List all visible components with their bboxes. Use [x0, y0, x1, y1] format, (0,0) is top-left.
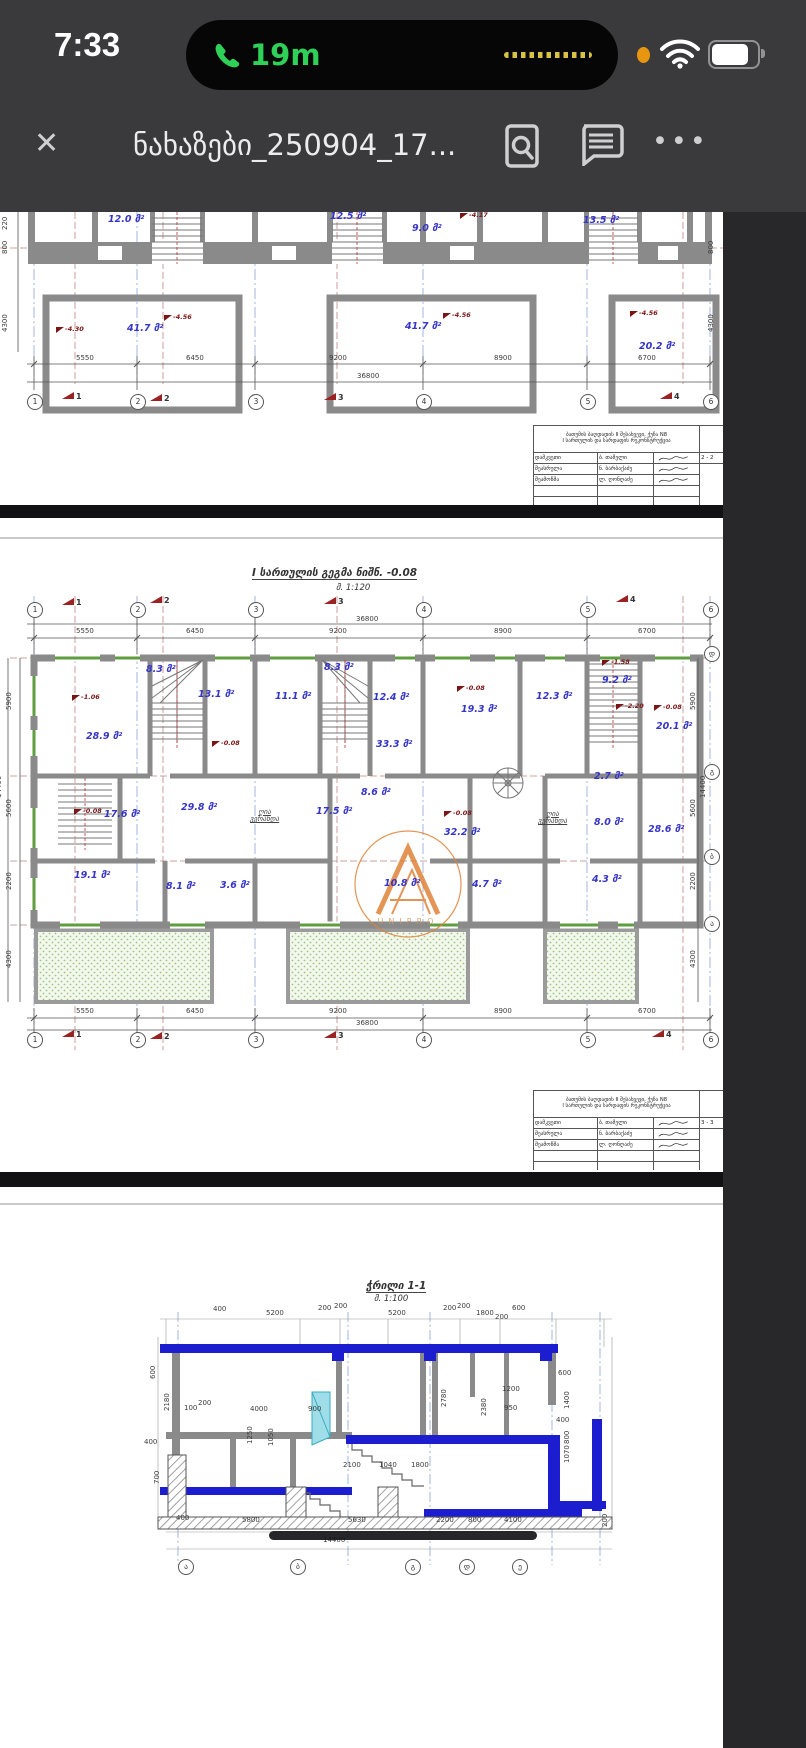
title-block: ბათუმის ბაღდადის II შესახვევი, ქუჩა N8I … — [533, 1090, 723, 1170]
section-labels: ჭრილი 1-1მ. 1:10040052002002005200200200… — [0, 1187, 723, 1748]
axis-bubble: 3 — [248, 602, 264, 618]
plan-label: 220 — [2, 217, 9, 230]
plan-label: 600 — [512, 1305, 525, 1312]
plan-label: 1 — [62, 598, 82, 607]
plan-label: -4.56 — [630, 310, 658, 317]
plan-label: 5600 — [6, 799, 13, 817]
plan-label: მ. 1:100 — [374, 1295, 408, 1304]
person: ბ. თამელი — [598, 453, 654, 464]
axis-bubble: 2 — [130, 394, 146, 410]
plan-label: 5800 — [242, 1517, 260, 1524]
plan-label: 600 — [150, 1366, 157, 1379]
plan-label: 4300 — [708, 314, 715, 332]
plan-label: -0.08 — [444, 810, 472, 817]
plan-label: 6450 — [186, 1008, 204, 1015]
person: ლ. ღონღაძე — [598, 1140, 654, 1151]
plan-label: -0.08 — [654, 704, 682, 711]
role: შეასრულა — [534, 464, 598, 475]
plan-label: I სართულის გეგმა ნიშნ. -0.08 — [252, 568, 417, 580]
role: შეამოწმა — [534, 1140, 598, 1151]
plan-label: -4.30 — [56, 326, 84, 333]
plan-label: 800 — [564, 1431, 571, 1444]
title-block-table: ბათუმის ბაღდადის II შესახვევი, ქუჩა N8I … — [533, 1090, 723, 1170]
axis-bubble: 1 — [27, 394, 43, 410]
plan-label: 2100 — [343, 1462, 361, 1469]
plan-label: 17.5 მ² — [316, 807, 352, 817]
plan-label: 10.8 მ² — [384, 879, 420, 889]
axis-bubble: 5 — [580, 602, 596, 618]
plan-label: 12.0 მ² — [108, 215, 144, 225]
plan-label: 8.3 მ² — [324, 663, 354, 673]
title-block-table: ბათუმის ბაღდადის II შესახვევი, ქუჩა N8I … — [533, 425, 723, 505]
plan-label: 1 — [62, 392, 82, 401]
plan-label: -4.17 — [460, 212, 488, 219]
plan-label: 8.1 მ² — [166, 882, 196, 892]
plan-label: 6700 — [638, 628, 656, 635]
plan-label: 2780 — [441, 1389, 448, 1407]
axis-bubble: 6 — [703, 1032, 719, 1048]
signature — [654, 1140, 700, 1151]
plan-label: 12.5 მ² — [330, 212, 366, 222]
plan-label: -0.08 — [212, 740, 240, 747]
axis-bubble: ა — [704, 916, 720, 932]
plan-label: 4300 — [690, 950, 697, 968]
plan-label: 800 — [468, 1517, 481, 1524]
first-floor-plan-labels: I სართულის გეგმა ნიშნ. -0.08მ. 1:1201234… — [0, 518, 723, 1172]
plan-label: 36800 — [356, 616, 378, 623]
plan-label: 4.7 მ² — [472, 880, 502, 890]
sheet-ref: 3 - 3 — [700, 1118, 724, 1129]
axis-bubble: გ — [704, 764, 720, 780]
plan-label: 13.5 მ² — [583, 216, 619, 226]
plan-label: 1800 — [476, 1310, 494, 1317]
sheet-title: სარდაფის გეგმა ნიშნ. -3.50 — [700, 426, 724, 453]
plan-label: 8900 — [494, 1008, 512, 1015]
mic-in-use-indicator — [637, 47, 650, 63]
plan-label: 20.2 მ² — [639, 342, 675, 352]
role: შეასრულა — [534, 1129, 598, 1140]
plan-label: 28.9 მ² — [86, 732, 122, 742]
plan-label: 200 — [457, 1303, 470, 1310]
plan-label: 1070 — [564, 1445, 571, 1463]
plan-label: 9200 — [329, 628, 347, 635]
plan-label: 200 — [602, 1514, 609, 1527]
plan-label: 33.3 მ² — [376, 740, 412, 750]
plan-label: 200 — [443, 1305, 456, 1312]
plan-label: 4000 — [250, 1406, 268, 1413]
plan-label: 8.3 მ² — [146, 665, 176, 675]
company: შ.პ.ს. «უნიპრო» — [700, 464, 724, 506]
plan-label: 400 — [213, 1306, 226, 1313]
plan-label: 2 — [150, 394, 170, 403]
signature — [654, 475, 700, 486]
axis-bubble: დ — [704, 646, 720, 662]
axis-bubble: დ — [459, 1559, 475, 1575]
plan-label: 6700 — [638, 355, 656, 362]
plan-label: ღია ვერანდა — [538, 811, 567, 826]
person: ნ. ბარბაქაძე — [598, 1129, 654, 1140]
plan-label: 12.4 მ² — [373, 693, 409, 703]
clock: 7:33 — [54, 26, 120, 64]
signature — [654, 464, 700, 475]
plan-label: 950 — [504, 1405, 517, 1412]
axis-bubble: 1 — [27, 1032, 43, 1048]
plan-label: 3 — [324, 393, 344, 402]
dynamic-island-call-pill[interactable]: 19m — [186, 20, 618, 90]
plan-label: 400 — [144, 1439, 157, 1446]
plan-label: 2180 — [164, 1393, 171, 1411]
axis-bubble: 6 — [703, 394, 719, 410]
comments-icon[interactable] — [578, 122, 624, 166]
plan-label: 3 — [324, 1031, 344, 1040]
plan-label: 9.0 მ² — [412, 224, 442, 234]
plan-label: 36800 — [357, 373, 379, 380]
plan-label: 1250 — [247, 1426, 254, 1444]
pdf-page-basement-plan[interactable]: 12.0 მ²12.5 მ²9.0 მ²13.5 მ²41.7 მ²41.7 მ… — [0, 212, 723, 505]
plan-label: 1400 — [564, 1391, 571, 1409]
plan-label: 41.7 მ² — [127, 324, 163, 334]
company: შ.პ.ს. «უნიპრო» — [700, 1129, 724, 1171]
axis-bubble: ე — [512, 1559, 528, 1575]
plan-label: 19.1 მ² — [74, 871, 110, 881]
plan-label: 1 — [62, 1030, 82, 1039]
plan-label: 6700 — [638, 1008, 656, 1015]
axis-bubble: 2 — [130, 602, 146, 618]
plan-label: 29.8 მ² — [181, 803, 217, 813]
plan-label: 2 — [150, 1032, 170, 1041]
axis-bubble: 4 — [416, 602, 432, 618]
plan-label: -2.20 — [616, 703, 644, 710]
plan-label: 900 — [308, 1406, 321, 1413]
plan-label: 8900 — [494, 628, 512, 635]
plan-label: -0.08 — [457, 685, 485, 692]
plan-label: -0.08 — [74, 808, 102, 815]
app-chrome: 7:33 19m ✕ ნახაზები_250904_17... — [0, 0, 806, 212]
home-indicator[interactable] — [269, 1531, 537, 1540]
plan-label: 4300 — [6, 950, 13, 968]
pdf-page-section-1-1[interactable]: ჭრილი 1-1მ. 1:10040052002002005200200200… — [0, 1187, 723, 1748]
plan-label: -4.56 — [443, 312, 471, 319]
plan-label: 2380 — [481, 1398, 488, 1416]
plan-label: 5630 — [348, 1517, 366, 1524]
signature — [654, 453, 700, 464]
recording-waveform-icon — [504, 52, 592, 58]
plan-label: 2200 — [436, 1517, 454, 1524]
plan-label: -1.58 — [602, 659, 630, 666]
plan-label: 200 — [198, 1400, 211, 1407]
plan-label: 200 — [334, 1303, 347, 1310]
axis-bubble: ბ — [704, 849, 720, 865]
plan-label: 3.6 მ² — [220, 881, 250, 891]
more-options-button[interactable]: ••• — [652, 126, 709, 157]
axis-bubble: 3 — [248, 394, 264, 410]
page-gap — [0, 1172, 723, 1187]
axis-bubble: 3 — [248, 1032, 264, 1048]
person: ლ. ღონღაძე — [598, 475, 654, 486]
person: ბ. თამელი — [598, 1118, 654, 1129]
plan-label: 36800 — [356, 1020, 378, 1027]
plan-label: 1040 — [379, 1462, 397, 1469]
plan-label: 9200 — [329, 355, 347, 362]
plan-label: 5200 — [266, 1310, 284, 1317]
plan-label: 800 — [2, 241, 9, 254]
battery-fill — [712, 44, 748, 65]
project-name: ბათუმის ბაღდადის II შესახვევი, ქუჩა N8I … — [534, 1091, 700, 1118]
plan-label: 200 — [495, 1314, 508, 1321]
plan-label: 700 — [154, 1471, 161, 1484]
sheet-ref: 2 - 2 — [700, 453, 724, 464]
plan-label: 5200 — [388, 1310, 406, 1317]
plan-label: 28.6 მ² — [648, 825, 684, 835]
plan-label: 4 — [652, 1030, 672, 1039]
person: ნ. ბარბაქაძე — [598, 464, 654, 475]
plan-label: 5550 — [76, 628, 94, 635]
plan-label: 4 — [660, 392, 680, 401]
plan-label: 400 — [176, 1515, 189, 1522]
viewer-background-strip — [723, 212, 806, 1748]
plan-label: 100 — [184, 1405, 197, 1412]
plan-label: 8.0 მ² — [594, 818, 624, 828]
axis-bubble: 5 — [580, 1032, 596, 1048]
axis-bubble: 1 — [27, 602, 43, 618]
call-duration: 19m — [250, 38, 321, 72]
plan-label: 13.1 მ² — [198, 690, 234, 700]
pdf-page-first-floor-plan[interactable]: UNIPRO I სართულის გეგმა ნიშნ. -0.08მ. 1:… — [0, 518, 723, 1172]
plan-label: 20.1 მ² — [656, 722, 692, 732]
plan-label: 5550 — [76, 355, 94, 362]
plan-label: ღია ვერანდა — [250, 809, 279, 824]
document-title: ნახაზები_250904_17... — [133, 128, 503, 162]
title-block: ბათუმის ბაღდადის II შესახვევი, ქუჩა N8I … — [533, 425, 723, 505]
plan-label: -1.06 — [72, 694, 100, 701]
plan-label: მ. 1:120 — [336, 584, 370, 593]
plan-label: 32.2 მ² — [444, 828, 480, 838]
plan-label: 1200 — [502, 1386, 520, 1393]
wifi-icon — [658, 36, 702, 70]
plan-label: 400 — [556, 1417, 569, 1424]
plan-label: 5550 — [76, 1008, 94, 1015]
signature — [654, 1118, 700, 1129]
plan-label: 1800 — [411, 1462, 429, 1469]
project-name: ბათუმის ბაღდადის II შესახვევი, ქუჩა N8I … — [534, 426, 700, 453]
axis-bubble: 2 — [130, 1032, 146, 1048]
plan-label: 800 — [708, 241, 715, 254]
search-in-document-icon[interactable] — [502, 122, 542, 170]
signature — [654, 1129, 700, 1140]
plan-label: 5900 — [6, 692, 13, 710]
close-button[interactable]: ✕ — [34, 126, 59, 161]
role: დამკვეთი — [534, 1118, 598, 1129]
plan-label: 19.3 მ² — [461, 705, 497, 715]
plan-label: ჭრილი 1-1 — [366, 1281, 426, 1293]
plan-label: 4.3 მ² — [592, 875, 622, 885]
plan-label: 2 — [150, 596, 170, 605]
plan-label: 2200 — [690, 872, 697, 890]
plan-label: 9.2 მ² — [602, 676, 632, 686]
axis-bubble: 5 — [580, 394, 596, 410]
axis-bubble: ა — [178, 1559, 194, 1575]
plan-label: 41.7 მ² — [405, 322, 441, 332]
plan-label: 9200 — [329, 1008, 347, 1015]
sheet-title: I სართულის გეგმა ნიშნ. -0.08 — [700, 1091, 724, 1118]
plan-label: 4 — [616, 595, 636, 604]
role: შეამოწმა — [534, 475, 598, 486]
axis-bubble: გ — [405, 1559, 421, 1575]
document-toolbar: ✕ ნახაზები_250904_17... ••• — [0, 108, 806, 188]
plan-label: 5600 — [690, 799, 697, 817]
plan-label: 14400 — [0, 776, 3, 798]
battery-icon — [708, 40, 760, 69]
phone-icon — [212, 41, 240, 69]
plan-label: 6450 — [186, 355, 204, 362]
iphone-screen: 7:33 19m ✕ ნახაზები_250904_17... — [0, 0, 806, 1748]
axis-bubble: 4 — [416, 1032, 432, 1048]
plan-label: 5900 — [690, 692, 697, 710]
plan-label: 4300 — [2, 314, 9, 332]
plan-label: 2.7 მ² — [594, 772, 624, 782]
axis-bubble: 4 — [416, 394, 432, 410]
plan-label: 17.6 მ² — [104, 810, 140, 820]
plan-label: 600 — [558, 1370, 571, 1377]
plan-label: 8900 — [494, 355, 512, 362]
axis-bubble: 6 — [703, 602, 719, 618]
plan-label: 4100 — [504, 1517, 522, 1524]
plan-label: 8.6 მ² — [361, 788, 391, 798]
plan-label: -4.56 — [164, 314, 192, 321]
plan-label: 3 — [324, 597, 344, 606]
plan-label: 11.1 მ² — [275, 692, 311, 702]
plan-label: 2200 — [6, 872, 13, 890]
plan-label: 200 — [318, 1305, 331, 1312]
plan-label: 14400 — [700, 776, 707, 798]
axis-bubble: ბ — [290, 1559, 306, 1575]
plan-label: 12.3 მ² — [536, 692, 572, 702]
page-gap — [0, 505, 723, 518]
plan-label: 6450 — [186, 628, 204, 635]
role: დამკვეთი — [534, 453, 598, 464]
plan-label: 1050 — [268, 1428, 275, 1446]
